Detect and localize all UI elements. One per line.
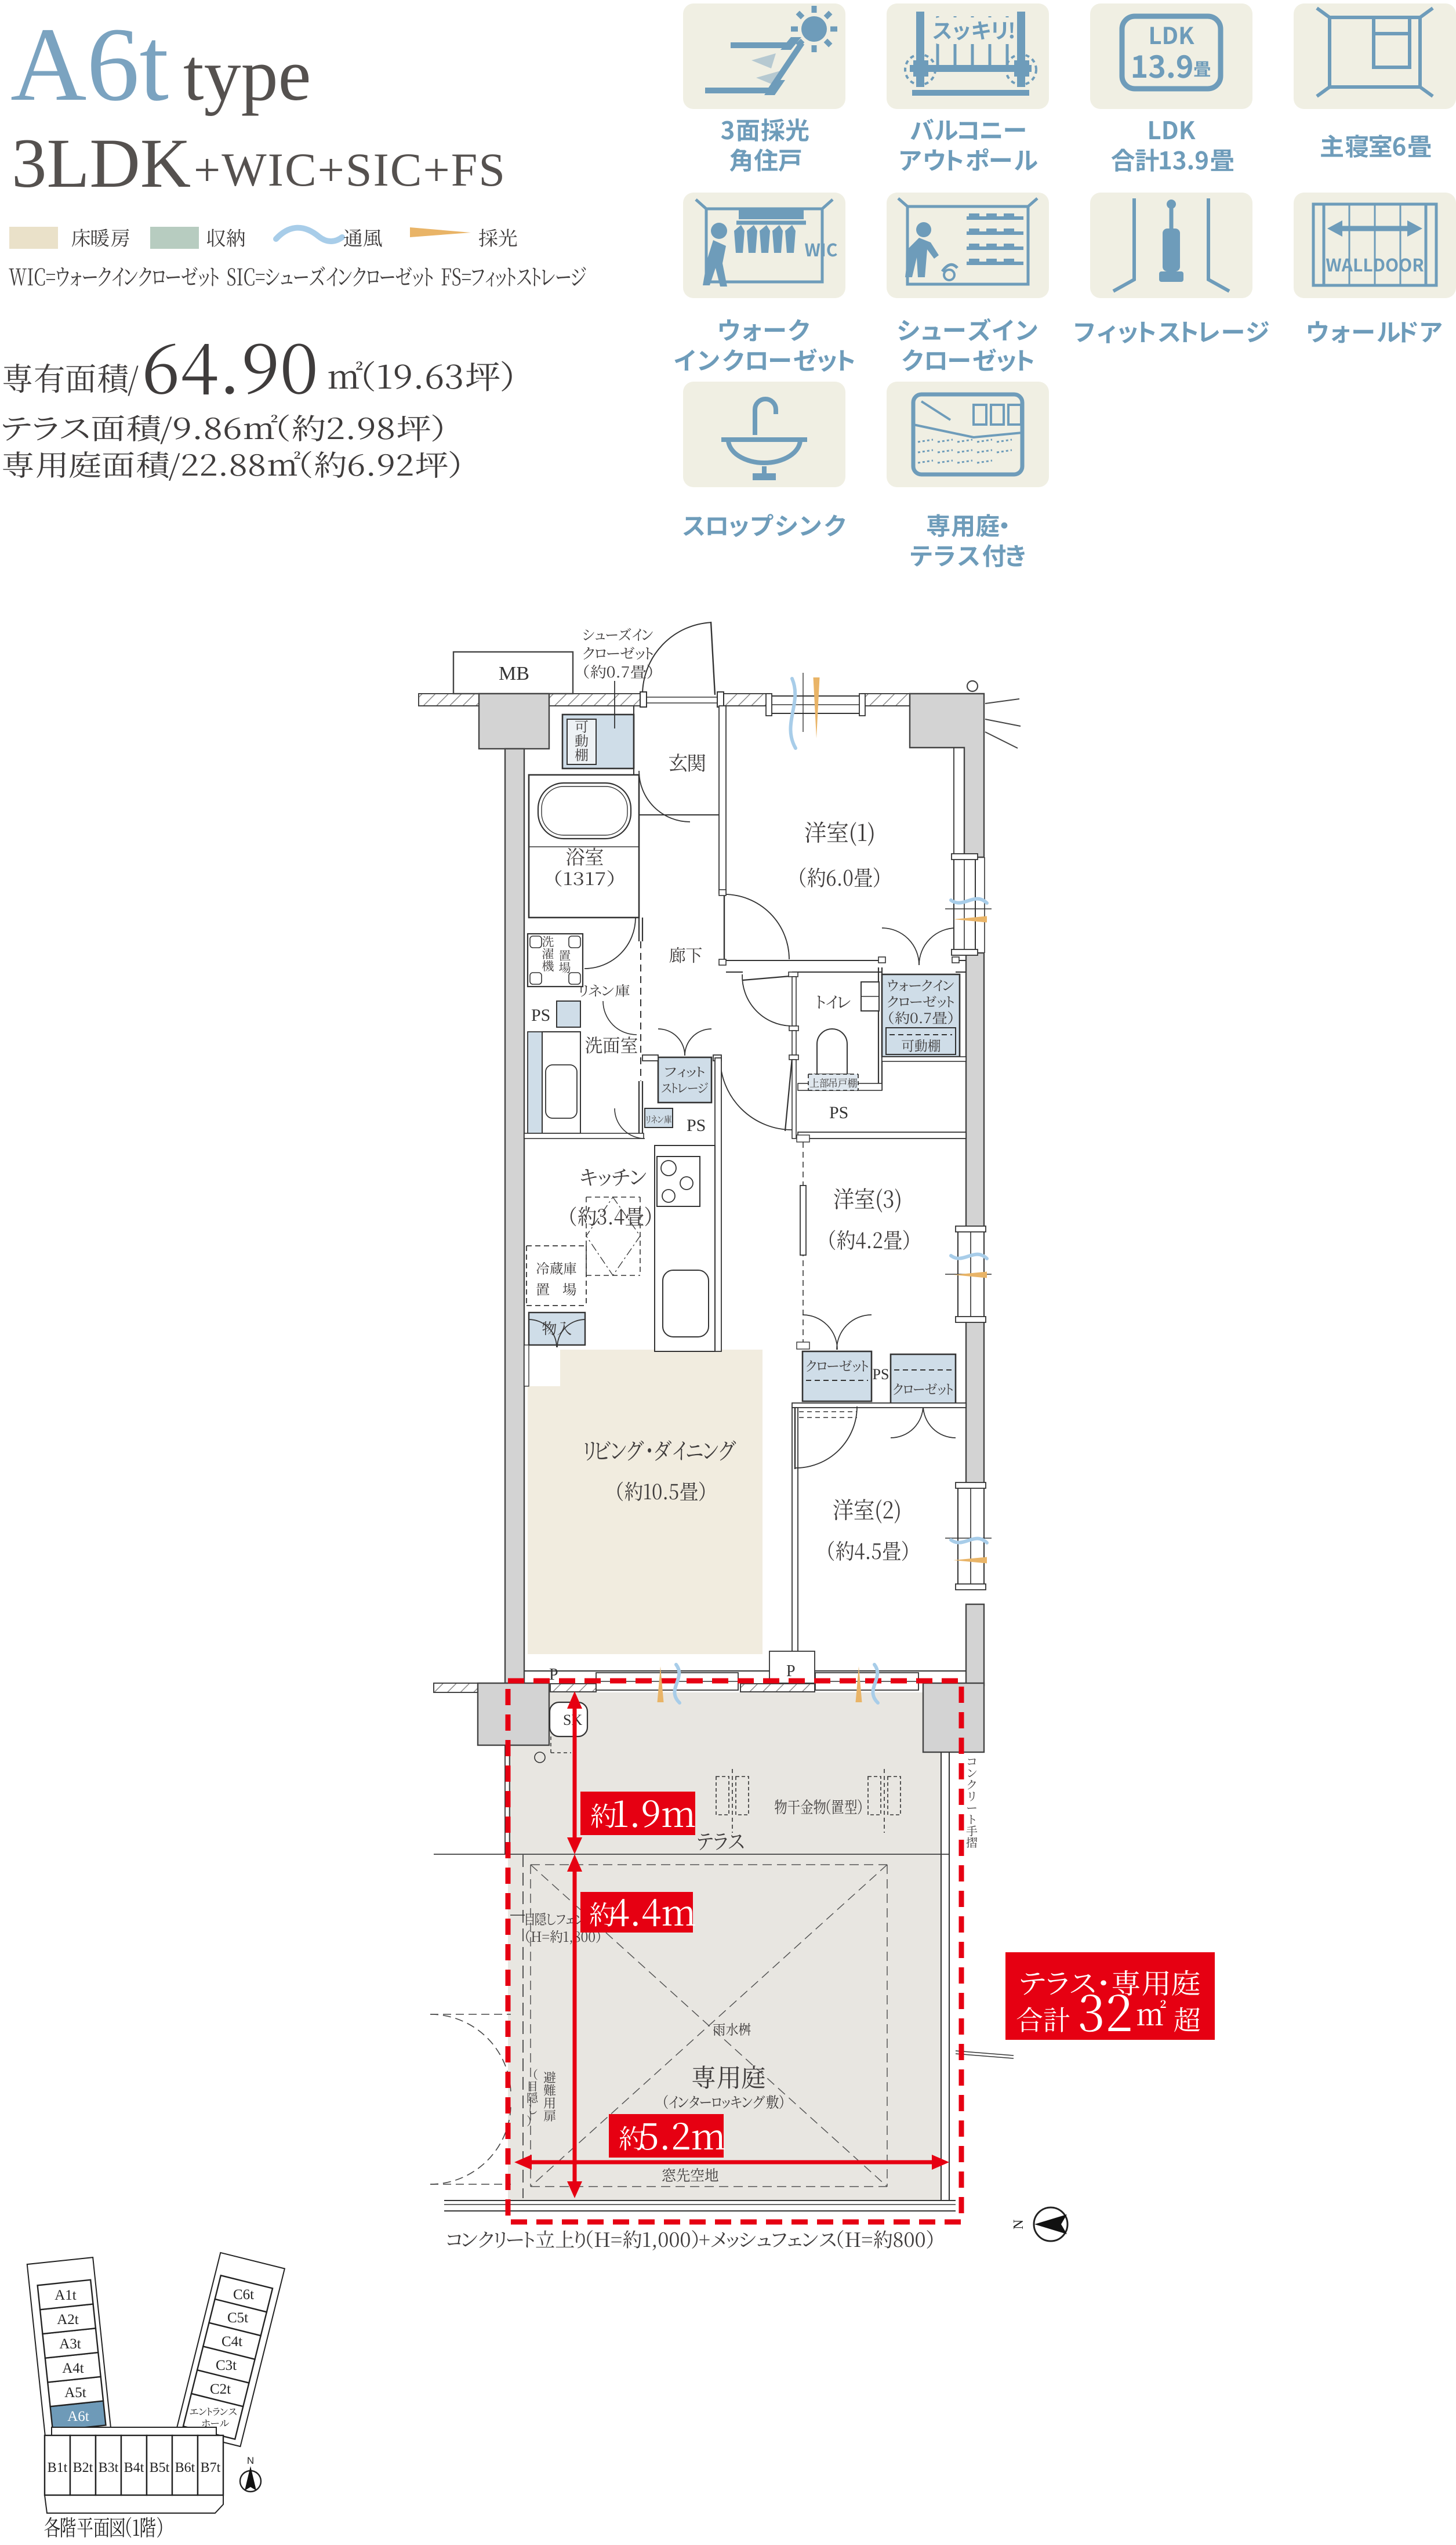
svg-text:A5t: A5t (64, 2385, 86, 2401)
svg-text:PS: PS (829, 1103, 848, 1122)
svg-text:C4t: C4t (222, 2334, 242, 2350)
svg-text:+WIC+SIC+FS: +WIC+SIC+FS (194, 143, 506, 196)
svg-text:C6t: C6t (233, 2287, 254, 2303)
svg-text:A4t: A4t (62, 2361, 84, 2376)
svg-text:C3t: C3t (216, 2358, 237, 2373)
svg-text:P: P (786, 1662, 796, 1680)
svg-text:type: type (183, 34, 311, 116)
svg-text:A6t: A6t (10, 6, 169, 123)
svg-text:C2t: C2t (210, 2381, 231, 2397)
svg-text:3LDK: 3LDK (12, 125, 191, 202)
svg-text:PS: PS (873, 1366, 889, 1383)
svg-text:PS: PS (687, 1116, 706, 1135)
svg-text:P: P (549, 1666, 558, 1684)
svg-text:B3t: B3t (99, 2460, 119, 2475)
svg-text:B1t: B1t (48, 2460, 68, 2475)
svg-text:A3t: A3t (59, 2336, 81, 2352)
svg-text:PS: PS (531, 1006, 550, 1025)
svg-text:B4t: B4t (124, 2460, 144, 2475)
svg-text:MB: MB (499, 663, 529, 684)
svg-text:A1t: A1t (55, 2287, 77, 2303)
svg-text:N: N (1011, 2220, 1026, 2229)
svg-text:B6t: B6t (175, 2460, 195, 2475)
svg-text:B5t: B5t (150, 2460, 170, 2475)
svg-text:C5t: C5t (227, 2310, 248, 2326)
svg-text:A2t: A2t (57, 2312, 79, 2328)
svg-text:B7t: B7t (201, 2460, 221, 2475)
svg-text:B2t: B2t (73, 2460, 93, 2475)
svg-text:A6t: A6t (67, 2409, 89, 2424)
svg-text:N: N (247, 2455, 254, 2466)
